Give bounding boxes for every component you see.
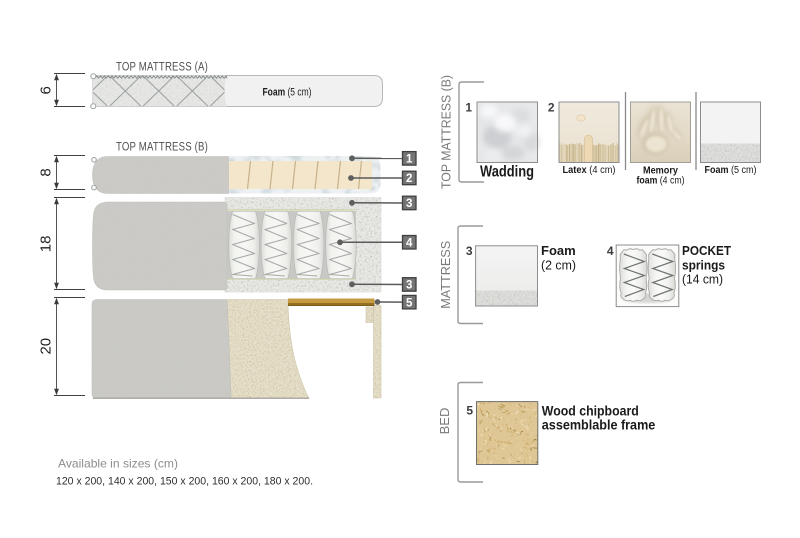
svg-text:2: 2 [406, 173, 412, 185]
svg-text:foam (4 cm): foam (4 cm) [637, 176, 685, 187]
svg-text:120 x 200, 140 x 200, 150 x 20: 120 x 200, 140 x 200, 150 x 200, 160 x 2… [56, 475, 313, 487]
svg-text:(14 cm): (14 cm) [682, 272, 723, 287]
svg-text:3: 3 [406, 280, 412, 292]
svg-text:Available in sizes (cm): Available in sizes (cm) [58, 457, 178, 471]
svg-text:6: 6 [37, 86, 54, 94]
svg-text:8: 8 [37, 168, 54, 176]
svg-text:TOP MATTRESS (B): TOP MATTRESS (B) [438, 75, 453, 189]
svg-text:assemblable frame: assemblable frame [542, 417, 656, 432]
svg-text:Wood chipboard: Wood chipboard [542, 403, 639, 418]
svg-text:MATTRESS: MATTRESS [438, 240, 453, 308]
svg-text:(2 cm): (2 cm) [541, 258, 576, 273]
svg-text:2: 2 [548, 101, 555, 115]
svg-text:3: 3 [466, 244, 473, 258]
svg-text:POCKET: POCKET [682, 243, 731, 258]
svg-text:20: 20 [37, 338, 54, 355]
svg-text:TOP MATTRESS (A): TOP MATTRESS (A) [116, 62, 208, 74]
svg-text:5: 5 [406, 297, 413, 309]
svg-text:Wadding: Wadding [480, 164, 534, 181]
svg-text:4: 4 [607, 244, 614, 258]
svg-text:5: 5 [466, 404, 473, 418]
svg-text:springs: springs [682, 258, 725, 273]
svg-text:Foam: Foam [541, 243, 576, 258]
svg-text:18: 18 [37, 236, 54, 253]
svg-text:TOP MATTRESS (B): TOP MATTRESS (B) [116, 142, 208, 154]
svg-text:4: 4 [406, 238, 413, 250]
svg-text:3: 3 [406, 198, 412, 210]
svg-text:BED: BED [437, 408, 452, 435]
svg-text:Foam (5 cm): Foam (5 cm) [705, 165, 757, 176]
svg-text:Latex (4 cm): Latex (4 cm) [563, 165, 616, 176]
svg-text:1: 1 [465, 101, 472, 115]
svg-text:1: 1 [406, 154, 413, 166]
svg-text:Foam (5 cm): Foam (5 cm) [263, 86, 312, 98]
